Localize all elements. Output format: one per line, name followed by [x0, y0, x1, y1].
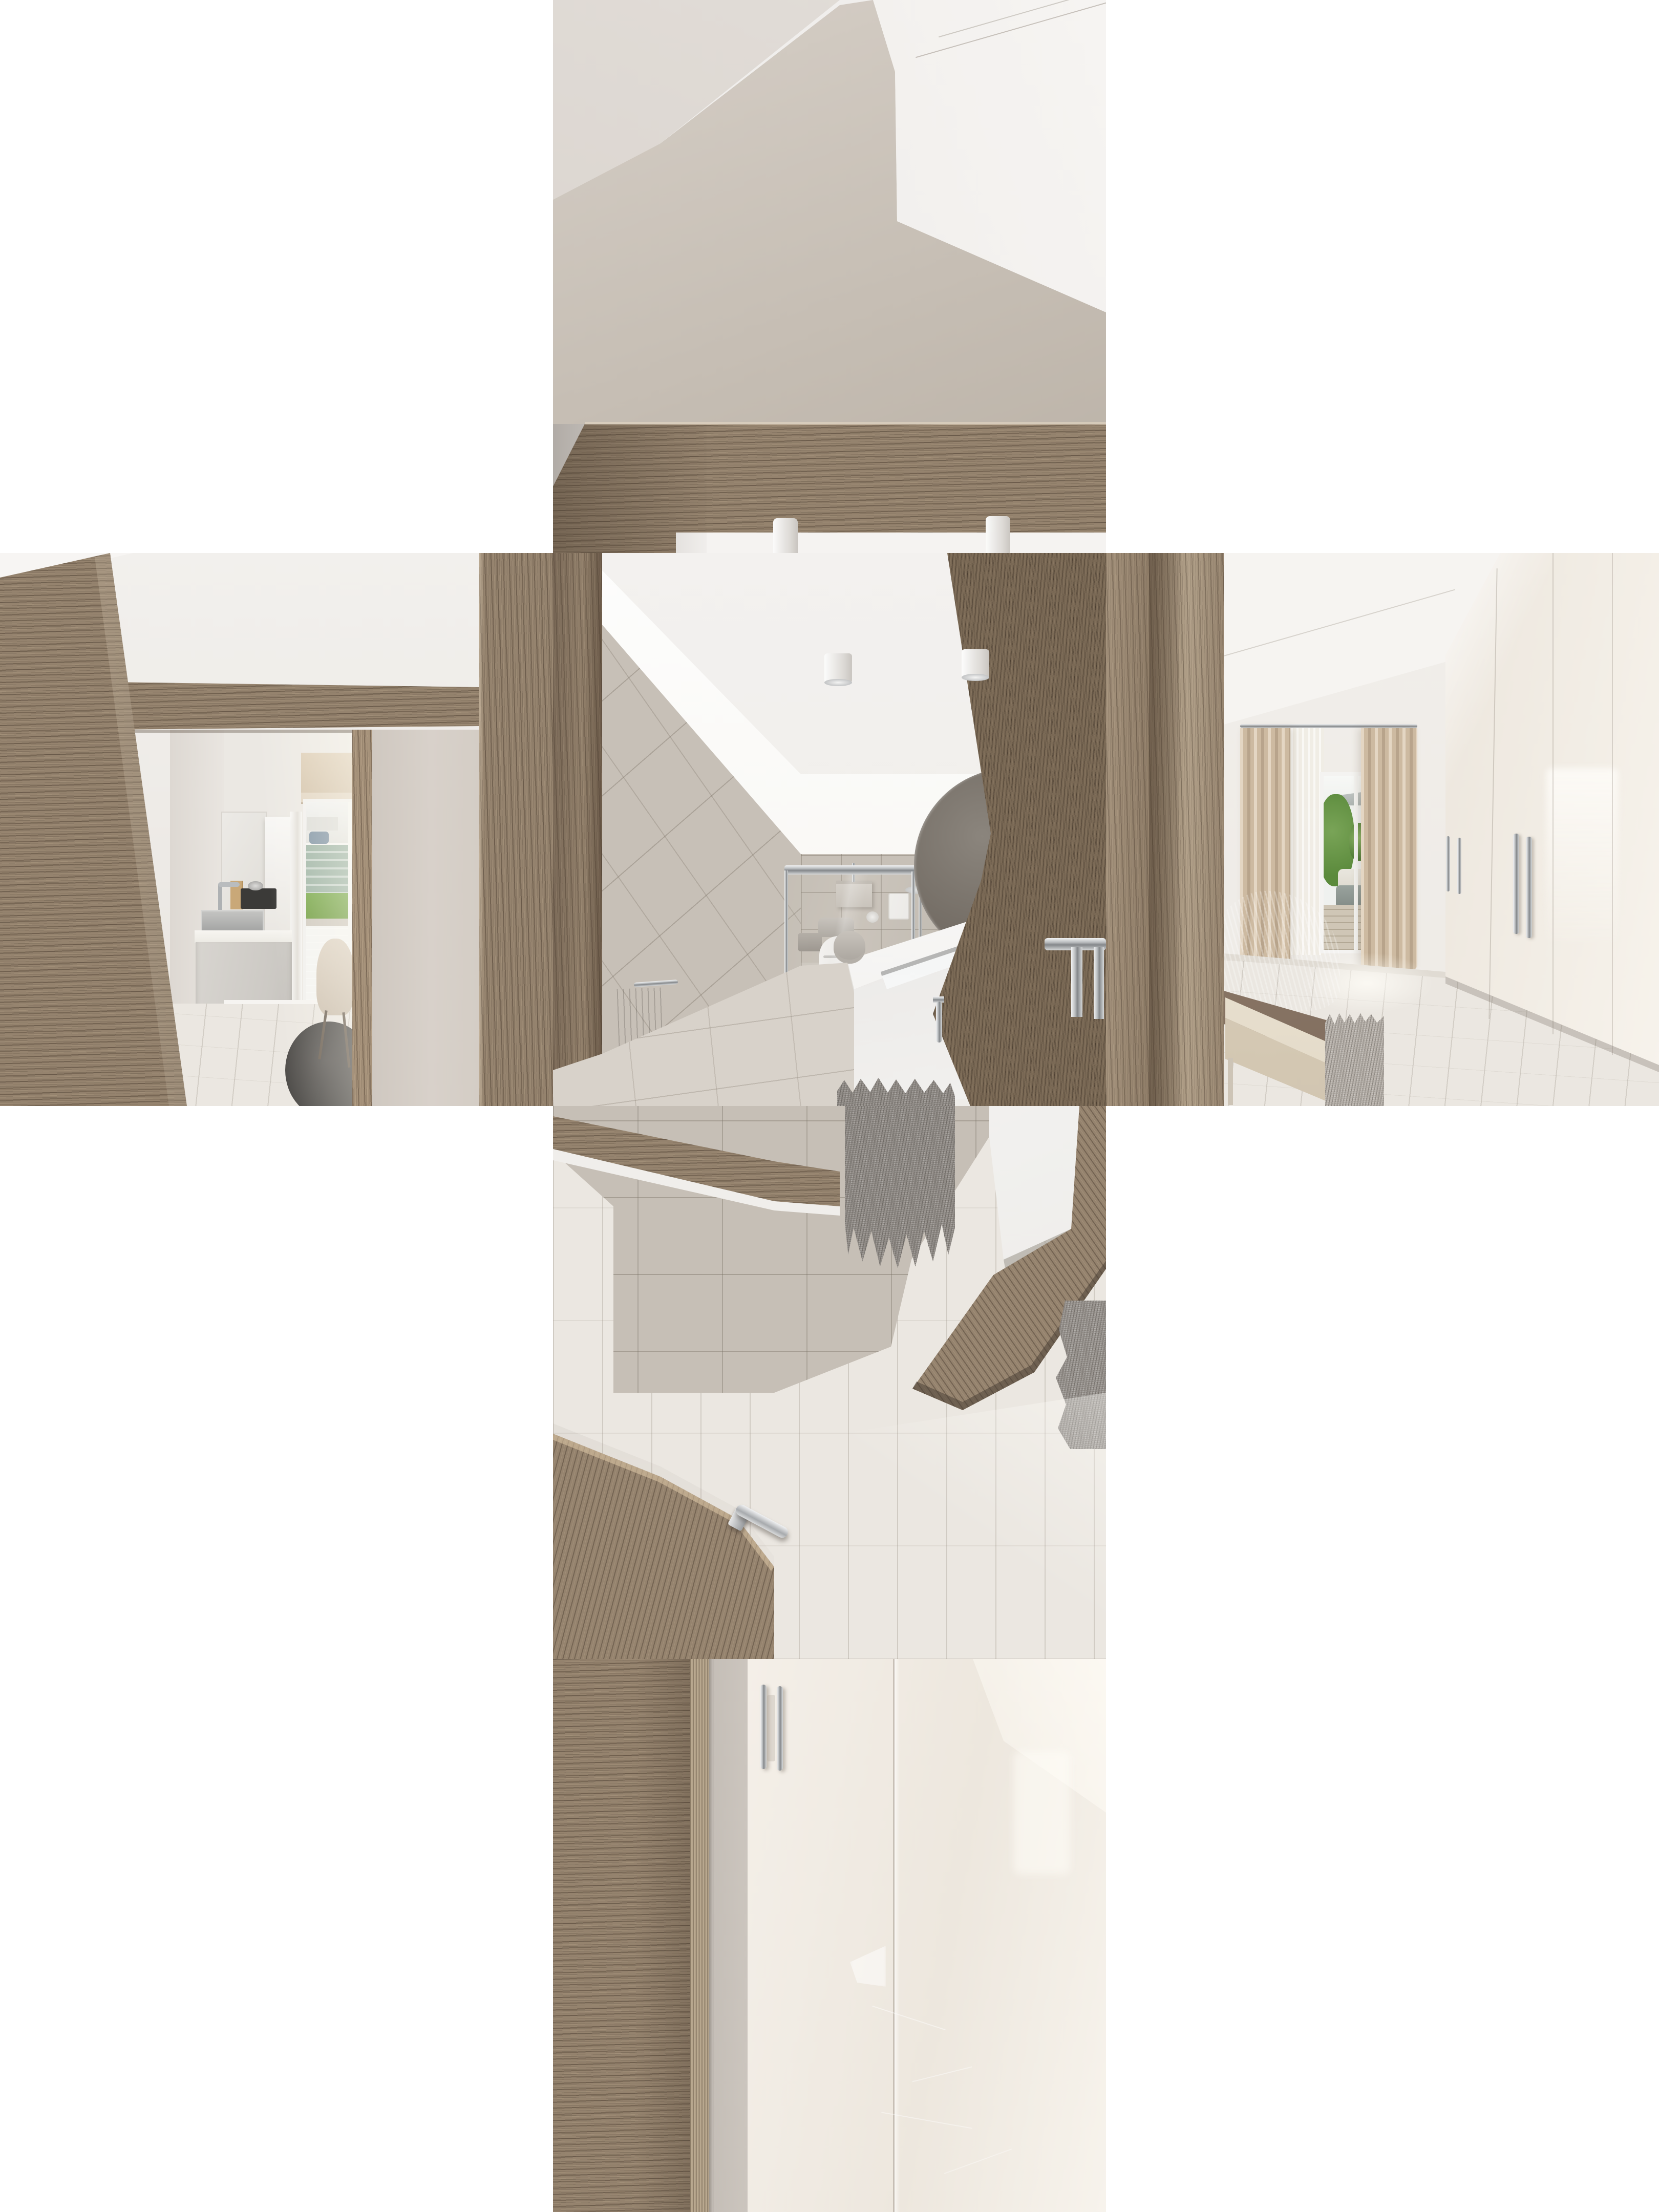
- wardrobe-window-reflection: [1546, 768, 1618, 942]
- wardrobe-handle-small: [1446, 836, 1450, 891]
- door-towel-bar: [936, 1002, 942, 1043]
- curtain-right: [1361, 728, 1417, 970]
- face-back-closeup: [553, 1659, 1106, 2212]
- jamb-edge-light: [479, 553, 484, 1106]
- door-leaf-shading: [553, 1659, 690, 2212]
- door-edge-shadow: [709, 1659, 714, 2212]
- ceiling-light-top: [773, 518, 798, 553]
- window-mullion: [1354, 772, 1358, 953]
- hall-wall: [372, 730, 479, 1106]
- door-jamb-strip: [479, 553, 553, 1106]
- ceiling-light-rim: [824, 679, 852, 686]
- wardrobe-handle-large: [1526, 837, 1532, 938]
- seam-highlight: [895, 1659, 900, 2212]
- wardrobe-reflection: [1014, 1751, 1070, 1874]
- wardrobe-seam: [1612, 553, 1613, 1055]
- door-edge-profile: [690, 1659, 709, 2212]
- face-top-ceiling: [553, 0, 1106, 553]
- face-right-bedroom: [1106, 553, 1659, 1106]
- bedroom-shag-rug: [1325, 1011, 1384, 1106]
- ceiling-light-top: [986, 516, 1010, 553]
- left-wood-grain: [553, 553, 602, 1071]
- door-edge-dark-band: [1149, 553, 1179, 1106]
- curtain-rod: [1240, 724, 1417, 728]
- ceiling-light-rim: [962, 674, 989, 681]
- door-frame-post: [352, 730, 372, 1106]
- vanity-towels: [834, 931, 865, 964]
- faucet-handle: [1094, 947, 1104, 1019]
- doorway-scene: [170, 730, 352, 1106]
- wardrobe-handle-large: [1513, 834, 1519, 934]
- wardrobe-seam: [1552, 553, 1554, 1034]
- wardrobe-bar-handle: [777, 1686, 783, 1771]
- bench-leg: [1228, 1058, 1233, 1105]
- handle-recess-shadow: [767, 1695, 775, 1761]
- face-front-bathroom: [553, 553, 1106, 1106]
- faucet-body: [1071, 947, 1082, 1017]
- cubemap-cross-panorama: [0, 0, 1659, 2212]
- sunlight-wash: [170, 730, 352, 1106]
- bathroom-ceiling-glimpse: [676, 533, 1106, 553]
- wardrobe-bar-handle: [760, 1685, 767, 1769]
- face-bottom-floor: [553, 1106, 1106, 1659]
- face-left-doorway: [0, 553, 553, 1106]
- wardrobe-handle-small: [1457, 838, 1461, 894]
